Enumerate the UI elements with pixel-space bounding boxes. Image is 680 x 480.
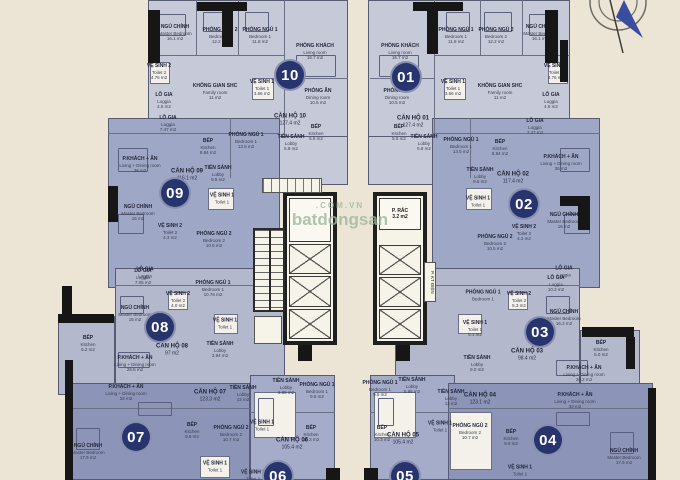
room-label: VỆ SINH 1Toilet 15.1 m2 (463, 321, 487, 337)
room-label: VỆ SINH 2Toilet 24.0 m2 (166, 292, 190, 308)
room-label: PHÒNG NGỦ 2Bedroom 210.5 m2 (477, 235, 512, 251)
trash-room-area: 3.2 m2 (392, 214, 408, 220)
floor-plan: P. RÁC 3.2 m2 P. KT ĐIỆN NGỦ CHÍNHMaster… (0, 0, 680, 480)
unit-02-badge: 02 (508, 188, 540, 220)
wall-segment (578, 196, 590, 230)
room-label: VỆ SINH 1Toilet 1 (213, 319, 237, 330)
room-label: VỆ SINH 1Toilet 13.66 m2 (250, 80, 274, 96)
room-label: TIỀN SẢNHLobby5.8 m2 (411, 135, 438, 151)
north-arrow-icon (572, 0, 664, 56)
unit-03-label: CĂN HỘ 0398.4 m2 (511, 348, 543, 361)
room-label: LÔ GIALoggia4.6 m2 (155, 93, 172, 109)
wall-segment (396, 345, 410, 361)
room-label: VỆ SINH 1Toilet 1 (428, 422, 452, 433)
room-label: PHÒNG NGỦ 1Bedroom 113.5 m2 (228, 133, 263, 149)
room-label: PHÒNG NGỦ 2Bedroom 210.7 m2 (213, 426, 248, 442)
elevator-shaft (379, 277, 421, 307)
unit-09-badge: 09 (159, 177, 191, 209)
unit-10-label: CĂN HỘ 10127.4 m2 (274, 113, 306, 126)
room-label: P.KHÁCH + ĂNLiving + Dining room26.5 m2 (114, 356, 155, 372)
wall-segment (648, 388, 656, 480)
room-label: P.KHÁCH + ĂNLiving + Dining room36 m2 (119, 157, 160, 173)
wall-segment (298, 345, 312, 361)
room-label: VỆ SINH 2Toilet 24.3 m2 (158, 224, 182, 240)
wall-segment (626, 337, 635, 369)
unit-02-label: CĂN HỘ 02117.4 m2 (497, 171, 529, 184)
room-label: P.KHÁCH + ĂNLiving + Dining room26.2 m2 (563, 366, 604, 382)
vent-shaft (262, 178, 322, 193)
wall-segment (427, 9, 438, 54)
room-label: PHÒNG KHÁCHLiving room16.7 m2 (381, 44, 419, 60)
room-label: BẾPKitchen8.84 m2 (492, 140, 508, 156)
room-label: BẾPKitchen5.5 m2 (308, 125, 323, 141)
room-label: TIỀN SẢNHLobby12 m2 (230, 386, 257, 402)
room-label: VỆ SINH 2Toilet 24.76 m2 (147, 64, 171, 80)
room-label: LÔ GIALoggia10.2 m2 (547, 276, 564, 292)
room-label: PHÒNG NGỦ 2Bedroom 210.5 m2 (196, 232, 231, 248)
watermark: .COM.VN batdongsan (288, 201, 392, 230)
room-label: TIỀN SẢNHLobby9.5 m2 (467, 168, 494, 184)
stairwell (253, 228, 285, 312)
room-label: P.KHÁCH + ĂNLiving + Dining room36 m2 (540, 155, 581, 171)
wall-segment (560, 40, 568, 82)
room-label: VỆ SINH 1Toilet 13.66 m2 (441, 80, 465, 96)
room-label: BẾPKitchen5.0 m2 (593, 341, 608, 357)
room-label: BẾPKitchen8.84 m2 (200, 139, 216, 155)
room-label: TIỀN SẢNHLobby3.94 m2 (207, 342, 234, 358)
room-label: NGỦ CHÍNHMaster Bedroom17.5 m2 (607, 449, 640, 465)
room-label: PHÒNG NGỦ 1Bedroom 111.8 m2 (438, 28, 473, 44)
elevator-shaft (289, 244, 331, 274)
elevator-shaft (379, 309, 421, 339)
room-label: LÔ GIALoggia7.47 m2 (526, 119, 543, 135)
furniture-outline (138, 402, 172, 416)
room-label: P.KHÁCH + ĂNLiving + Dining room32 m2 (105, 385, 146, 401)
wall-segment (364, 468, 378, 480)
wall-segment (222, 9, 233, 47)
room-label: PHÒNG NGỦ 2Bedroom 210.7 m2 (452, 424, 487, 440)
wall-segment (413, 2, 463, 11)
room-label: PHÒNG NGỦ 1Bedroom 19.5 m2 (299, 383, 334, 399)
room-label: VỆ SINH 2Toilet 25.3 m2 (507, 292, 531, 308)
furniture-outline (378, 398, 394, 426)
room-box (450, 412, 492, 470)
unit-07-badge: 07 (120, 421, 152, 453)
wall-segment (108, 186, 118, 222)
unit-08-badge: 08 (144, 311, 176, 343)
room-label: TIỀN SẢNHLobby9.0 m2 (464, 356, 491, 372)
room-label: NGỦ CHÍNHMaster Bedroom17.5 m2 (71, 444, 104, 460)
room-label: BẾPKitchen9.6 m2 (503, 430, 518, 446)
unit-10-badge: 10 (274, 59, 306, 91)
wall-segment (65, 360, 73, 480)
room-label: PHÒNG NGỦ 1Bedroom 113.5 m2 (443, 138, 478, 154)
unit-04-badge: 04 (532, 424, 564, 456)
room-label: NGỦ CHÍNHMaster Bedroom16 m2 (121, 205, 154, 221)
elevator-shaft (289, 276, 331, 306)
wall-segment (582, 327, 634, 337)
room-label: TIỀN SẢNHLobby12 m2 (438, 390, 465, 406)
room-label: TIỀN SẢNHLobby5.8 m2 (278, 135, 305, 151)
unit-06-label: CĂN HỘ 06105.4 m2 (276, 437, 308, 450)
furniture-outline (556, 412, 590, 426)
wall-segment (545, 10, 558, 63)
room-label: TIỀN SẢNHLobby9.5 m2 (205, 166, 232, 182)
room-label: KHÔNG GIAN SHCFamily room11 m2 (193, 84, 237, 100)
wall-segment (148, 10, 160, 63)
room-label: BẾPKitchen9.6 m2 (184, 423, 199, 439)
partition-line (148, 55, 284, 56)
room-label: VỆ SINH 2Toilet 24.3 m2 (512, 225, 536, 241)
room-label: PHÒNG NGỦ 1Bedroom 111.8 m2 (242, 28, 277, 44)
watermark-domain: .COM.VN (288, 201, 392, 210)
room-label: PHÒNG ĂNDining room10.5 m2 (305, 89, 332, 105)
electrical-room-label: P. KT ĐIỆN (424, 262, 436, 302)
elevator-shaft (379, 245, 421, 275)
room-label: PHÒNG NGỦ 2Bedroom 212.2 m2 (478, 28, 513, 44)
room-label: NGỦ CHÍNHMaster Bedroom16 m2 (547, 213, 580, 229)
elevator-shaft (289, 309, 331, 339)
unit-08-label: CĂN HỘ 0897 m2 (156, 343, 188, 356)
unit-01-label: CĂN HỘ 01127.4 m2 (397, 115, 429, 128)
wall-segment (62, 286, 72, 316)
unit-05-label: CĂN HỘ 05105.4 m2 (387, 432, 419, 445)
core-corridor (379, 232, 421, 243)
room-label: PHÒNG NGỦ 1Bedroom 1 (465, 291, 500, 302)
utility-room (254, 316, 282, 344)
room-label: LÔ GIALoggia7.47 m2 (159, 116, 176, 132)
partition-line (432, 133, 600, 134)
room-label: BẾPKitchen5.2 m2 (80, 336, 95, 352)
room-label: VỆ SINH 1Toilet 1 (466, 197, 490, 208)
room-label: KHÔNG GIAN SHCFamily room11 m2 (478, 84, 522, 100)
watermark-brand: batdongsan (288, 210, 392, 230)
room-label: NGỦ CHÍNHMaster Bedroom16.1 m2 (158, 25, 191, 41)
unit-07-label: CĂN HỘ 07123.3 m2 (194, 389, 226, 402)
wall-segment (326, 468, 340, 480)
room-label: P.KHÁCH + ĂNLiving + Dining room32 m2 (554, 393, 595, 409)
partition-line (448, 408, 653, 409)
room-label: PHÒNG NGỦ 1Bedroom 110.76 m2 (195, 281, 230, 297)
room-label: LÔ GIALoggia4.6 m2 (542, 93, 559, 109)
room-label: VỆ SINH 1Toilet 1 (203, 462, 227, 473)
unit-03-badge: 03 (524, 316, 556, 348)
room-label: PHÒNG KHÁCHLiving room16.7 m2 (296, 44, 334, 60)
room-label: PHÒNG NGỦ 1Bedroom 19.5 m2 (362, 381, 397, 397)
room-label: LÔ GIALoggia7.05 m2 (134, 269, 151, 285)
unit-04-label: CĂN HỘ 04123.1 m2 (464, 392, 496, 405)
room-label: VỆ SINH 1Toilet 1 (250, 421, 274, 432)
room-label: TIỀN SẢNHLobby5.85 m2 (273, 379, 300, 395)
room-label: VỆ SINH 1Toilet 1 (508, 466, 532, 477)
room-label: TIỀN SẢNHLobby5.85 m2 (399, 378, 426, 394)
unit-01-badge: 01 (390, 61, 422, 93)
room-label: VỆ SINH 1Toilet 1 (210, 194, 234, 205)
